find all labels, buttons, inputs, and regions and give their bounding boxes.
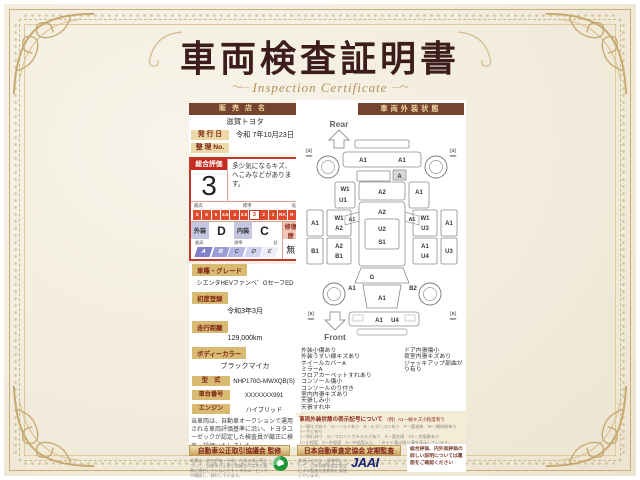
left-quarter-panel [335,182,355,208]
exterior-interior-section: 外装 D 内装 C 最高 標準 低 A B C D [191,221,299,259]
grade-row: 外装 D 内装 C [191,222,282,239]
issue-date-label: 発 行 日 [191,130,229,140]
tailgate-window [357,171,390,181]
code-right-inner-rear-1: W1 [421,216,431,222]
mileage-label: 走行距離 [192,321,228,333]
front-wheel-right-inner [424,288,437,301]
rear-label: Rear [330,119,350,129]
grade-scale-labels: 最高 標準 低 [191,202,299,209]
code-windshield: G [370,275,375,281]
fair-trade-council-note: 本書は、総合評価・外装・内装の表示等について、自動車公正取引協議会の定めた基準に… [190,458,270,478]
letter-scale-strip: A B C D E [191,246,282,259]
corner-flourish-icon [542,382,630,470]
first-registration-value: 令和3年3月 [189,304,301,318]
rear-arrow-icon [329,130,349,148]
rear-wheel-left-inner [322,161,335,174]
evaluation-top: 総合評価 3 多少気になるキズ、へこみなどがあります。 [191,159,299,202]
tire-depth-unit: mm [450,317,457,321]
damage-note: 天張すれ中 [301,405,401,411]
front-wheel-left [323,283,345,305]
control-number-label: 整 理 No. [191,143,229,153]
control-number-row: 整 理 No. [189,141,301,154]
exterior-interior-grades: 外装 D 内装 C 最高 標準 低 A B C D [191,222,282,259]
inspection-statement: 当車両は、自動車オークションで運用される車両評価基準に沿い、トヨタユーゼックが認… [189,417,300,442]
code-left-outer-front: B1 [311,249,319,255]
evaluation-grade-cell: 総合評価 3 [191,159,228,201]
model-code-label: 型 式 [192,376,230,386]
tire-depth-unit: mm [306,154,313,158]
front-lamp-left [353,315,363,321]
code-roof-rear: A2 [378,190,386,196]
dealer-name-header: 販売店名 [189,103,301,115]
scale-cell: 4.5 [221,210,230,220]
interior-grade: C [252,222,277,239]
tire-depth-front-left: [5] [308,311,314,316]
scale-cell: 4 [230,210,239,220]
chassis-number-row: 車台番号 XXXXXXX991 [192,389,298,401]
front-lamp-right [405,315,415,321]
body-color-value: ブラックマイカ [189,359,301,373]
rear-spoiler [355,140,409,148]
letter-cell-b: B [211,247,229,257]
letter-cell-c: C [227,247,245,257]
legend-line: C－割れ有り G－フロントガラスキズ有り X－要交換 XX－交換跡有り [299,434,463,439]
code-left-inner-front-1: A2 [335,244,343,250]
tire-depth-rear-left: [4] [306,148,312,153]
letter-scale-labels: 最高 標準 低 [191,239,282,246]
code-left-inner-front-2: B1 [335,254,343,260]
front-label: Front [324,332,346,342]
letter-cell-e: E [260,247,278,257]
scale-cell: 3.5 [240,210,249,220]
code-rear-bumper-right: A1 [398,158,406,164]
tire-depth-unit: mm [450,154,457,158]
engine-value: ハイブリッド [230,405,298,414]
scale-cell-selected: 3 [249,210,259,220]
front-bumper [349,312,419,326]
code-tailgate: A [397,174,402,180]
certificate-page: 車両検査証明書 ～— Inspection Certificate —～ 販売店… [4,4,636,476]
fair-trade-mark-logo [273,456,288,471]
damage-note: ジャッキアップ部曲がり有り [404,361,464,374]
subtitle-text: Inspection Certificate [252,80,387,95]
scale-label-standard: 標準 [243,203,252,209]
code-hood: A1 [378,296,386,302]
damage-notes-column-2: ドア内張傷小 荷室内張キズあり ジャッキアップ部曲がり有り [404,348,464,373]
overall-grade-value: 3 [191,170,227,201]
model-code-value: NHP170G-MWXQB(S) [230,378,298,385]
grade-scale-strip: S 6 5 4.5 4 3.5 3 2 1 RA R [193,210,297,220]
rear-wheel-left [317,156,339,178]
damage-notes-column-1: 外装小傷あり 外装うすい線キズあり ホイールカバーA ミラーA フロアカーペット… [301,348,401,411]
exterior-condition-panel: 車両外装状態 Rear A1 A1 [4] mm [4] mm A [296,100,466,411]
model-grade-field: 車種・グレード シエンタHEVファンベ゛GセーフED [189,264,301,289]
tire-depth-unit: mm [308,317,315,321]
interior-label: 内装 [234,222,252,239]
scale-cell: 2 [260,210,269,220]
exterior-condition-header: 車両外装状態 [358,103,464,115]
page-title: 車両検査証明書 [4,30,636,82]
jaai-logo: JAAI [351,455,379,470]
dealer-card: 販売店名 滋賀トヨタ 発 行 日 令和 7年10月23日 整 理 No. [189,103,301,154]
lace-border-top [22,12,618,20]
legend-example: （例）A1－線キズ小程度有り [384,417,445,422]
scale-label-high: 最高 [194,203,203,209]
exterior-grade: D [209,222,234,239]
engine-row: エンジン ハイブリッド [192,403,298,415]
rear-wheel-right [425,156,447,178]
right-inner-door-rear [413,210,437,236]
scale-cell: 5 [212,210,221,220]
code-front-bumper-1: A1 [375,318,383,324]
evaluation-comment: 多少気になるキズ、へこみなどがあります。 [228,159,299,201]
overall-evaluation-box: 総合評価 3 多少気になるキズ、へこみなどがあります。 最高 標準 低 S 6 … [189,157,301,261]
right-inner-door-front [413,238,437,264]
tire-depth-rear-right: [4] [450,148,456,153]
body-color-field: ボディーカラー ブラックマイカ [189,347,301,373]
issue-date-value: 令和 7年10月23日 [229,128,301,141]
code-roof-u2: U2 [378,227,386,233]
letter-cell-a: A [194,247,212,257]
code-left-outer-rear: A1 [311,221,319,227]
overall-evaluation-label: 総合評価 [191,159,227,170]
front-wheel-left-inner [328,288,341,301]
code-right-outer-rear: A1 [445,221,453,227]
code-right-inner-front-2: U4 [421,254,429,260]
damage-code-legend: 車両外装状態の表示記号について （例）A1－線キズ小程度有り A－線キズ有り U… [296,413,466,442]
code-right-outer-front: U3 [445,249,453,255]
front-lip [357,329,407,335]
first-registration-field: 初度登録 令和3年3月 [189,292,301,318]
letter-label-high: 最高 [195,240,203,246]
front-arrow-icon [325,312,345,330]
corner-flourish-icon [10,382,98,470]
mileage-value: 129,000km [189,333,301,344]
letter-label-standard: 標準 [234,240,242,246]
legend-lines: A－線キズ有り U－ヘコミ有り B－キズヘコミ有り P－要塗装 W－補修跡有り … [296,423,466,446]
code-right-rail: A1 [409,217,416,223]
fair-trade-council-ribbon: 自動車公正取引協議会 監修 [189,445,290,456]
code-left-quarter-2: U1 [339,198,347,204]
code-left-inner-rear-1: W1 [335,216,345,222]
left-inner-door-front [327,238,351,264]
subtitle-flourish: —～ [392,82,408,92]
chassis-number-value: XXXXXXX991 [230,392,298,399]
issue-date-row: 発 行 日 令和 7年10月23日 [189,128,301,141]
dealer-name-value: 滋賀トヨタ [189,115,301,128]
model-grade-value: シエンタHEVファンベ゛GセーフED [189,276,301,289]
scale-cell: 6 [202,210,211,220]
legend-title: 車両外装状態の表示記号について （例）A1－線キズ小程度有り [296,413,466,423]
mileage-field: 走行距離 129,000km [189,321,301,344]
code-left-inner-rear-2: A2 [335,226,343,232]
legend-line: A－線キズ有り U－ヘコミ有り B－キズヘコミ有り P－要塗装 W－補修跡有り … [299,424,463,434]
left-inner-door-rear [327,210,351,236]
exterior-label: 外装 [191,222,209,239]
vehicle-info-column: 販売店名 滋賀トヨタ 発 行 日 令和 7年10月23日 整 理 No. 総合評… [189,103,301,447]
engine-label: エンジン [192,404,230,414]
code-front-bumper-2: U4 [391,318,399,324]
car-damage-diagram: Rear A1 A1 [4] mm [4] mm A W1 U1 [301,116,461,342]
body-color-label: ボディーカラー [192,347,246,359]
code-rear-bumper-left: A1 [359,158,367,164]
code-right-inner-front-1: A1 [421,244,429,250]
rear-wheel-right-inner [430,161,443,174]
code-front-fender-left: A1 [348,286,356,292]
jaai-audit-note: 本表示の方法・基準等について、日本自動車査定協会による監査を定期的に実施していま… [298,458,348,478]
code-roof-mid: A2 [378,210,386,216]
rear-bumper [343,152,421,167]
code-roof-s1: S1 [378,240,386,246]
code-right-quarter: A1 [415,190,423,196]
code-left-quarter-1: W1 [341,187,351,193]
letter-cell-d: D [244,247,262,257]
model-grade-label: 車種・グレード [192,264,247,276]
see-back-note: 総合評価、内外装評価の詳しい説明については裏面をご確認ください [407,444,466,472]
scale-cell: S [193,210,202,220]
code-left-rail: A1 [349,217,356,223]
front-wheel-right [419,283,441,305]
legend-title-text: 車両外装状態の表示記号について [299,417,383,423]
jaai-audit-ribbon: 日本自動車査定協会 定期監査 [297,445,401,456]
model-code-row: 型 式 NHP170G-MWXQB(S) [192,375,298,387]
windshield [355,268,409,283]
code-front-fender-right: B2 [409,286,417,292]
chassis-number-label: 車台番号 [192,390,230,400]
code-right-inner-rear-2: U3 [421,226,429,232]
scale-cell: RA [278,210,287,220]
first-registration-label: 初度登録 [192,292,228,304]
tire-depth-front-right: [5] [450,311,456,316]
scale-cell: 1 [269,210,278,220]
letter-label-low: 低 [273,240,277,246]
page-subtitle: ～— Inspection Certificate —～ [4,80,636,96]
subtitle-flourish: ～— [232,82,248,92]
